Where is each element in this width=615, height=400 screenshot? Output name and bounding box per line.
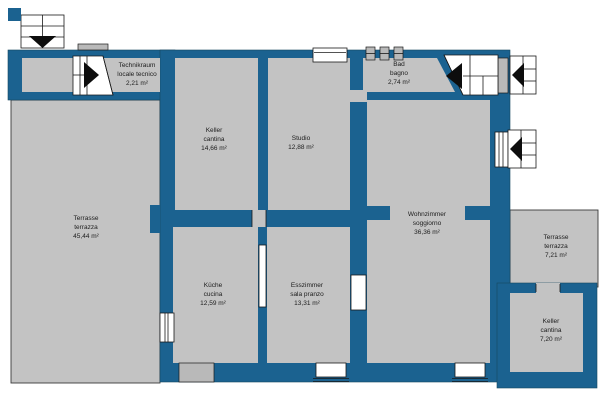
room-label-keller-main: Keller cantina 14,66 m² (201, 127, 227, 153)
room-label-wohnzimmer: Wohnzimmer soggiorno 36,36 m² (408, 211, 446, 237)
window-studio-top (313, 48, 347, 62)
room-studio (268, 58, 350, 210)
room-label-technikraum: Technikraum locale tecnico 2,21 m² (117, 62, 156, 88)
door-kueche-keller (252, 210, 266, 227)
door-terrace-keller-east (536, 283, 560, 293)
wall-stub-terrace (150, 205, 160, 233)
room-label-studio: Studio 12,88 m² (288, 135, 314, 153)
floor-plan-drawing (0, 0, 615, 400)
terrace-west-area (11, 100, 160, 383)
wall-stub-left (367, 206, 390, 220)
opening-bad-corridor (350, 90, 367, 102)
room-label-terrasse-west: Terrasse terrazza 45,44 m² (73, 215, 99, 241)
room-label-bad: Bad bagno 2,74 m² (388, 61, 410, 87)
room-label-kueche: Küche cucina 12,59 m² (200, 282, 226, 308)
room-label-keller-east: Keller cantina 7,20 m² (540, 318, 562, 344)
floor-plan: Technikraum locale tecnico 2,21 m² Kelle… (0, 0, 615, 400)
vent-window-icon (366, 47, 403, 60)
window-esszimmer-south (313, 363, 349, 382)
window-in-wall-east-lower (495, 132, 508, 167)
window-well-icon (510, 56, 536, 94)
door-esszimmer-wohnzimmer (351, 275, 366, 310)
window-in-wall-east-upper (498, 58, 508, 93)
exterior-step-top (78, 44, 108, 50)
window-wohnzimmer-south (452, 363, 488, 382)
door-kueche-esszimmer (259, 245, 266, 307)
entrance-marker-icon (21, 15, 64, 48)
room-label-esszimmer: Esszimmer sala pranzo 13,31 m² (290, 282, 324, 308)
door-kueche-exterior (179, 363, 214, 382)
legend-square (8, 8, 21, 21)
wall-stub-right (465, 206, 490, 220)
window-well-icon (508, 130, 536, 168)
window-kueche-west (160, 313, 174, 342)
room-label-terrasse-east: Terrasse terrazza 7,21 m² (544, 234, 569, 260)
